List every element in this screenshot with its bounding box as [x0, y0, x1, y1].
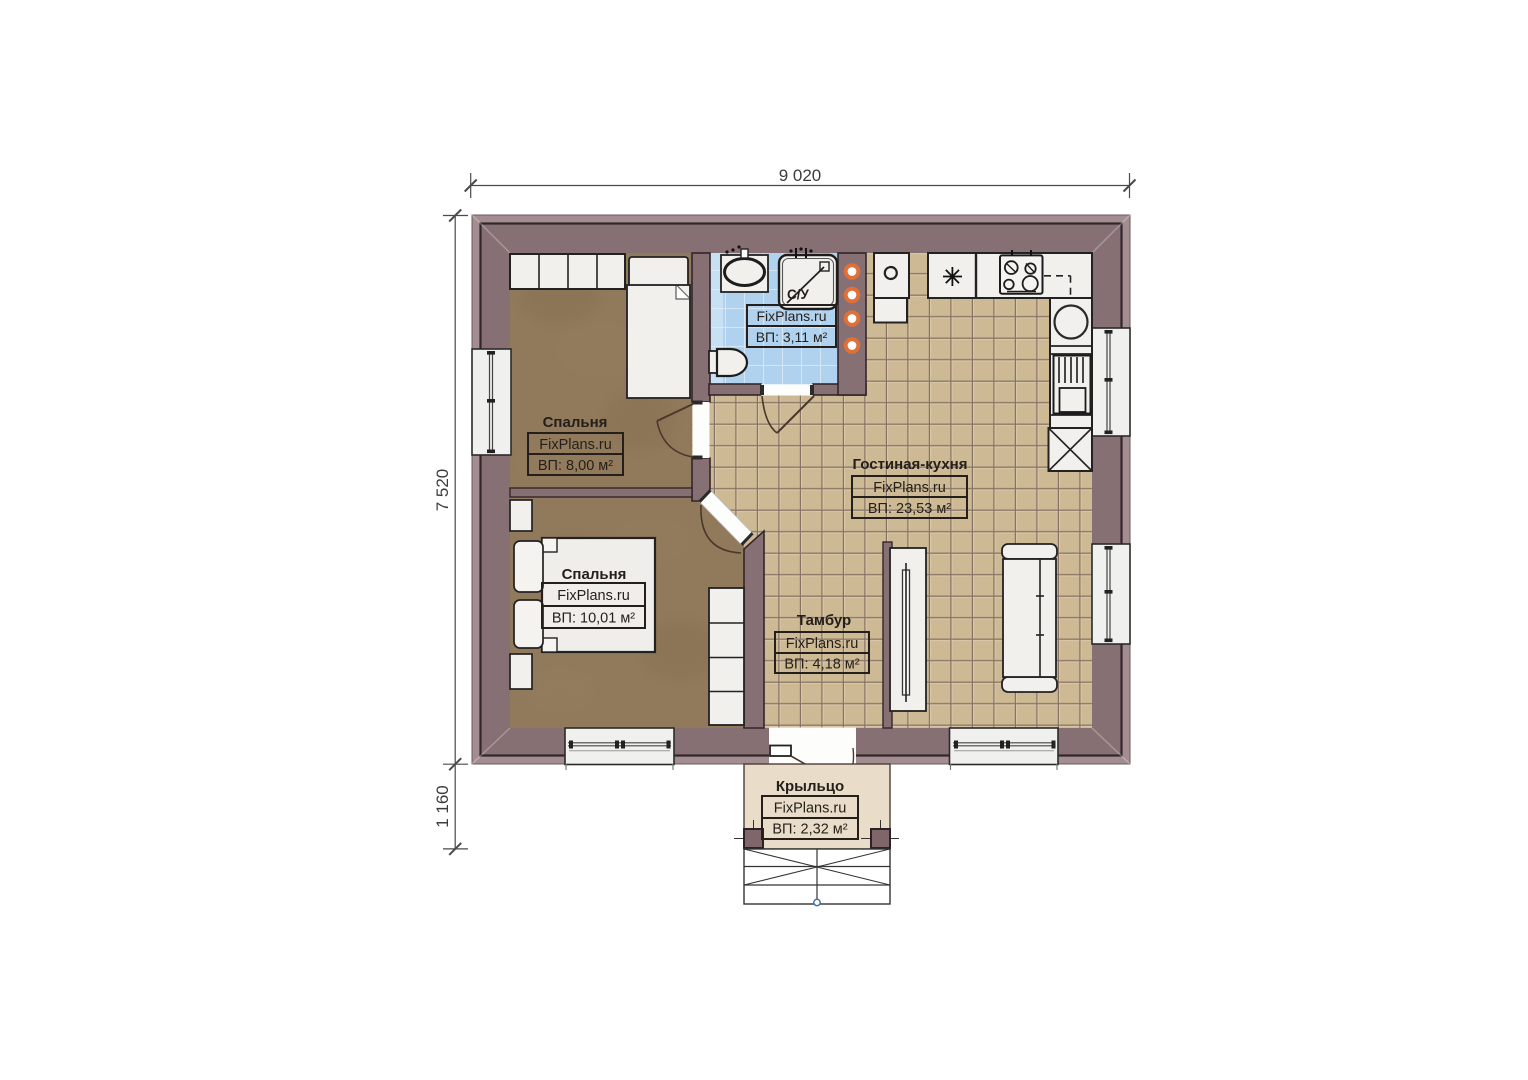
svg-text:ВП: 10,01 м²: ВП: 10,01 м² [552, 611, 635, 627]
svg-text:FixPlans.ru: FixPlans.ru [539, 437, 612, 453]
svg-text:ВП: 4,18 м²: ВП: 4,18 м² [784, 657, 859, 673]
svg-text:Тамбур: Тамбур [797, 612, 851, 629]
svg-text:1 160: 1 160 [433, 785, 452, 828]
svg-text:ВП: 2,32 м²: ВП: 2,32 м² [772, 822, 847, 838]
svg-text:FixPlans.ru: FixPlans.ru [756, 308, 826, 324]
svg-text:Гостиная-кухня: Гостиная-кухня [853, 456, 968, 473]
svg-text:Крыльцо: Крыльцо [776, 778, 844, 795]
svg-text:Спальня: Спальня [562, 566, 627, 583]
svg-text:7 520: 7 520 [433, 469, 452, 512]
svg-text:9 020: 9 020 [779, 166, 822, 185]
svg-text:FixPlans.ru: FixPlans.ru [786, 636, 859, 652]
svg-text:Спальня: Спальня [543, 414, 608, 431]
svg-text:FixPlans.ru: FixPlans.ru [557, 588, 630, 604]
svg-text:С/У: С/У [787, 287, 810, 302]
svg-text:FixPlans.ru: FixPlans.ru [774, 801, 847, 817]
svg-text:ВП: 23,53 м²: ВП: 23,53 м² [868, 501, 951, 517]
svg-text:ВП: 3,11 м²: ВП: 3,11 м² [756, 329, 828, 345]
svg-text:FixPlans.ru: FixPlans.ru [873, 480, 946, 496]
svg-text:ВП: 8,00 м²: ВП: 8,00 м² [538, 458, 613, 474]
